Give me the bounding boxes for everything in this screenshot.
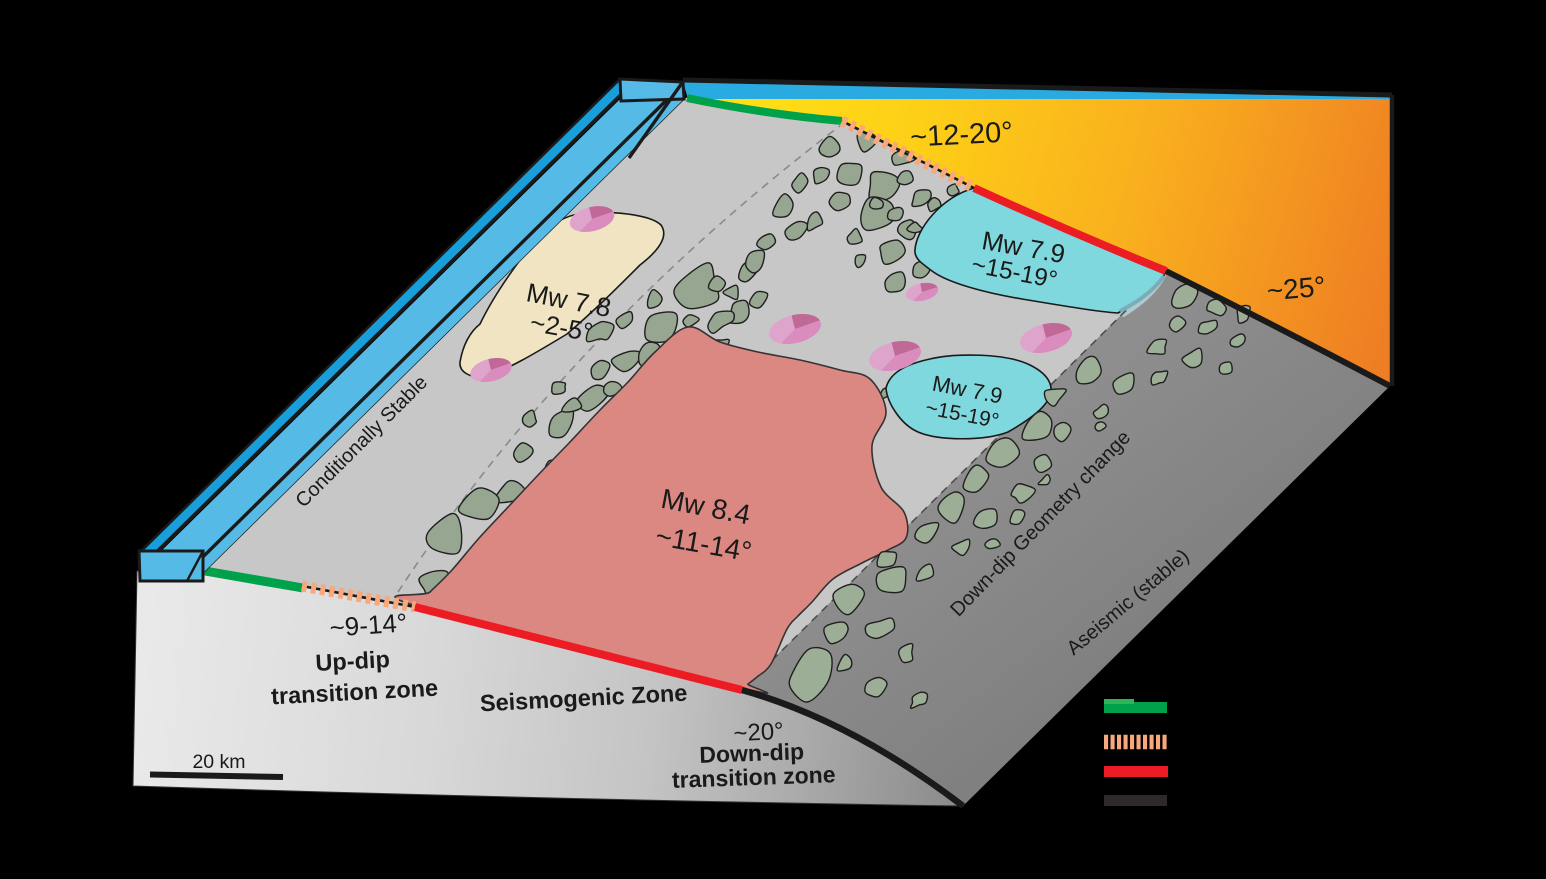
svg-text:~12-20°: ~12-20° (909, 116, 1013, 153)
svg-text:~9-14°: ~9-14° (329, 607, 409, 642)
svg-text:~25°: ~25° (1266, 271, 1327, 307)
svg-text:20 km: 20 km (192, 751, 245, 773)
svg-text:Up-dip: Up-dip (315, 646, 391, 676)
